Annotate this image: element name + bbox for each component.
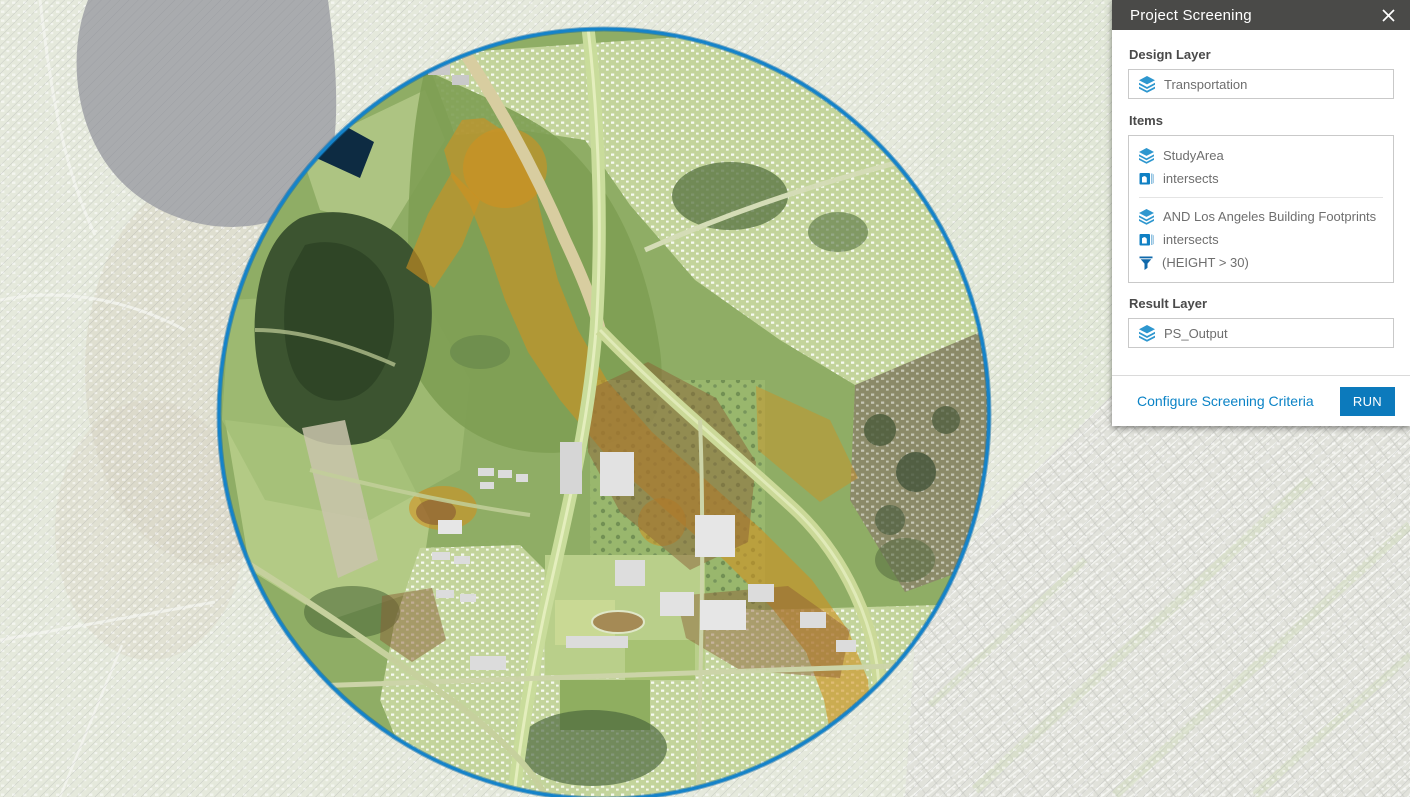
intersect-icon (1139, 232, 1154, 247)
layers-icon (1139, 148, 1154, 164)
item-layer-name: StudyArea (1163, 148, 1224, 163)
configure-screening-criteria-link[interactable]: Configure Screening Criteria (1137, 393, 1314, 409)
panel-footer: Configure Screening Criteria RUN (1112, 375, 1410, 426)
panel-body: Design Layer Transportation Items (1112, 30, 1410, 348)
layers-icon (1139, 209, 1154, 225)
item-layer-name: AND Los Angeles Building Footprints (1163, 209, 1376, 224)
item-filter-expression: (HEIGHT > 30) (1162, 255, 1249, 270)
item-operator: intersects (1163, 232, 1219, 247)
result-layer-value: PS_Output (1164, 326, 1228, 341)
result-layer-label: Result Layer (1129, 296, 1394, 311)
item-filter-row[interactable]: (HEIGHT > 30) (1139, 251, 1383, 274)
item-layer-row[interactable]: AND Los Angeles Building Footprints (1139, 205, 1383, 228)
run-button[interactable]: RUN (1340, 387, 1395, 416)
close-icon[interactable] (1378, 5, 1398, 25)
layers-icon (1139, 76, 1155, 93)
design-layer-select[interactable]: Transportation (1128, 69, 1394, 99)
items-label: Items (1129, 113, 1394, 128)
item-operator: intersects (1163, 171, 1219, 186)
item-operator-row[interactable]: intersects (1139, 167, 1383, 190)
items-divider (1139, 197, 1383, 198)
design-layer-label: Design Layer (1129, 47, 1394, 62)
panel-header: Project Screening (1112, 0, 1410, 30)
filter-icon (1139, 256, 1153, 270)
design-layer-value: Transportation (1164, 77, 1247, 92)
item-operator-row[interactable]: intersects (1139, 228, 1383, 251)
intersect-icon (1139, 171, 1154, 186)
item-layer-row[interactable]: StudyArea (1139, 144, 1383, 167)
panel-title: Project Screening (1130, 7, 1378, 24)
layers-icon (1139, 325, 1155, 342)
result-layer-select[interactable]: PS_Output (1128, 318, 1394, 348)
items-list: StudyArea intersects (1128, 135, 1394, 283)
project-screening-panel: Project Screening Design Layer Transport… (1112, 0, 1410, 426)
